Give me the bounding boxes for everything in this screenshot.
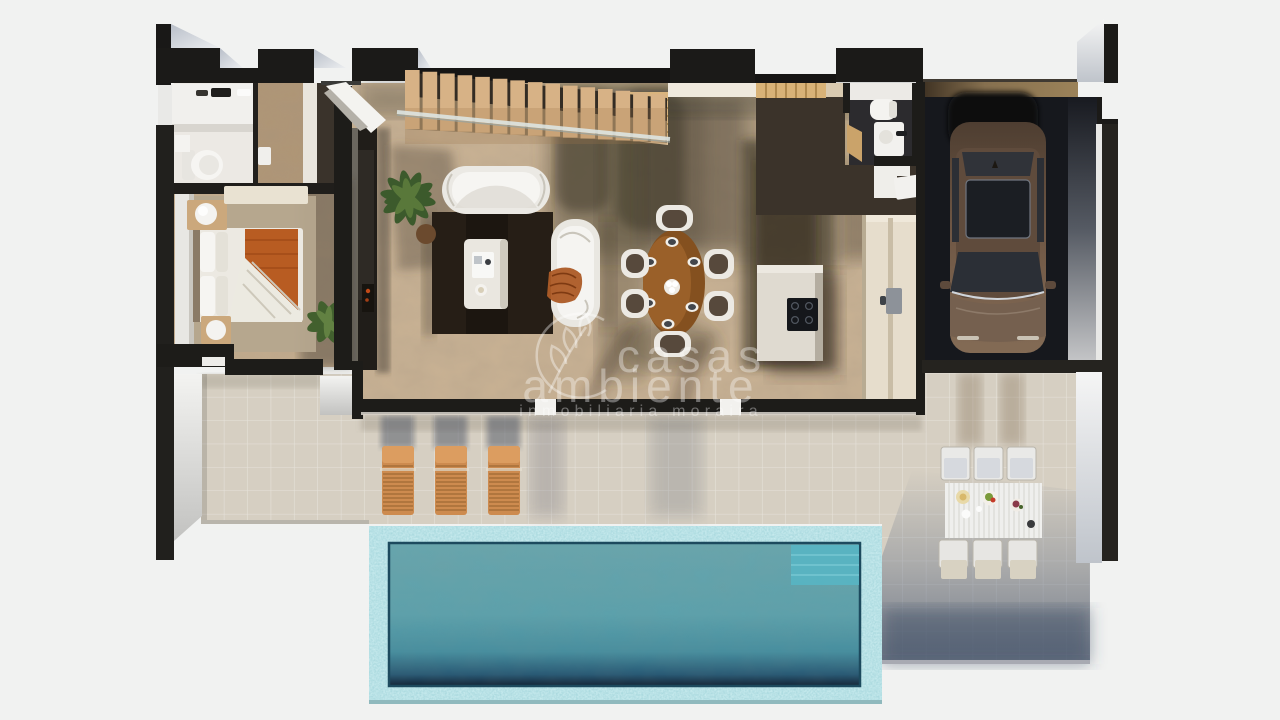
svg-text:inmobiliaria moraira: inmobiliaria moraira bbox=[519, 403, 763, 420]
